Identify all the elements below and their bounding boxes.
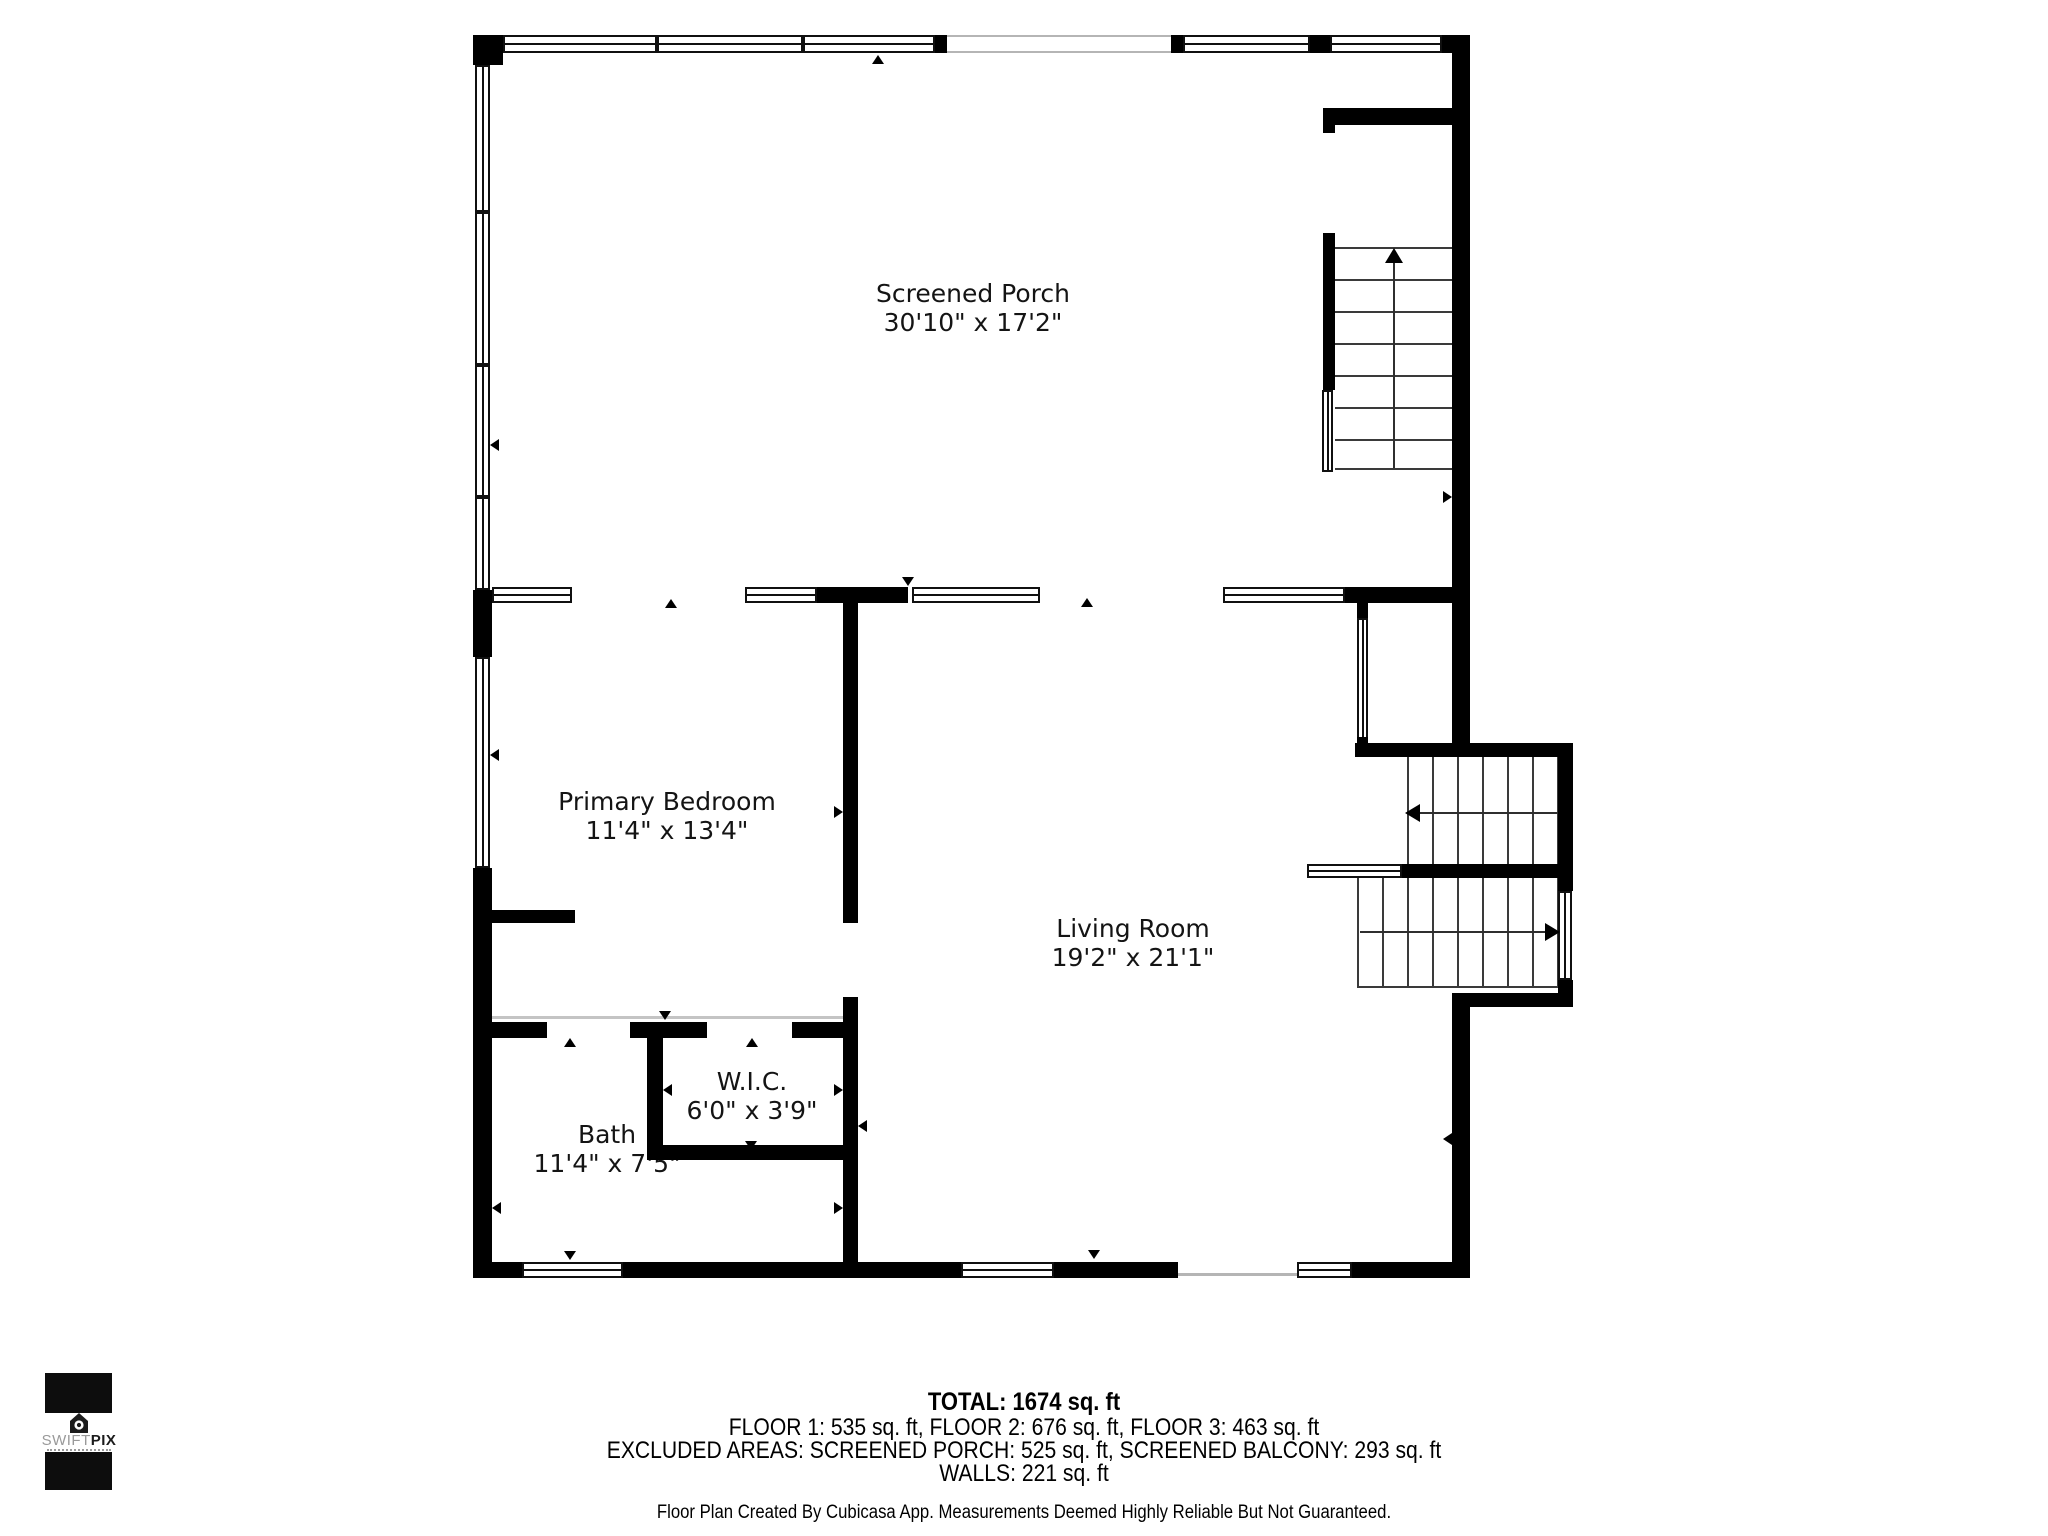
window: [1297, 1262, 1352, 1278]
door-marker-icon: [663, 1084, 672, 1096]
window: [492, 587, 572, 603]
wall-left: [473, 590, 492, 657]
door-marker-icon: [1443, 1133, 1452, 1145]
window: [1330, 35, 1442, 53]
door-marker-icon: [659, 1011, 671, 1020]
door-marker-icon: [834, 1084, 843, 1096]
wall-post: [935, 35, 947, 53]
window: [475, 212, 490, 365]
partition: [1357, 618, 1368, 739]
window: [657, 35, 803, 53]
wall-bumpout-top: [1355, 743, 1573, 757]
wall-bedroom-bottom: [492, 1022, 547, 1038]
plan-drawing: [0, 0, 2048, 1536]
window: [475, 657, 490, 868]
stair-direction-arrow-icon: [1405, 804, 1420, 822]
wall-alcove-right: [1455, 590, 1470, 757]
wall-stair-separator: [1400, 864, 1558, 878]
door-marker-icon: [665, 599, 677, 608]
window: [522, 1262, 623, 1278]
wall-right-lower: [1452, 993, 1470, 1278]
wall-stub: [1323, 108, 1335, 133]
door-marker-icon: [490, 749, 499, 761]
floor-plan-page: Screened Porch 30'10" x 17'2" Primary Be…: [0, 0, 2048, 1536]
stair-railing: [1307, 864, 1402, 878]
wall-bumpout-right: [1558, 743, 1573, 891]
open-boundary: [947, 35, 1171, 53]
wall-bedroom-bottom: [630, 1022, 707, 1038]
door-marker-icon: [1443, 491, 1452, 503]
door-marker-icon: [834, 806, 843, 818]
wall-post: [1171, 35, 1183, 53]
wall-divider-upper: [843, 603, 858, 923]
wall-bottom: [473, 1262, 522, 1278]
door-marker-icon: [872, 55, 884, 64]
stair-direction-line: [1412, 812, 1558, 814]
wall-porch-interior: [817, 587, 908, 603]
wall-corner-top-left: [473, 35, 503, 65]
wall-wic-left: [647, 1022, 663, 1160]
staircase-run-up: [1407, 757, 1558, 864]
door-marker-icon: [745, 1141, 757, 1150]
window: [1223, 587, 1345, 603]
window: [745, 587, 817, 603]
door-marker-icon: [746, 1038, 758, 1047]
window: [803, 35, 935, 53]
wall-bottom: [623, 1262, 961, 1278]
open-boundary: [1178, 1273, 1297, 1276]
door-marker-icon: [834, 1202, 843, 1214]
wall-bedroom-bottom: [792, 1022, 858, 1038]
window: [961, 1262, 1054, 1278]
door-marker-icon: [564, 1251, 576, 1260]
door-marker-icon: [1081, 598, 1093, 607]
wall-bottom: [1054, 1262, 1178, 1278]
wall-bumpout-bottom: [1453, 993, 1573, 1007]
door-marker-icon: [564, 1038, 576, 1047]
window: [475, 497, 490, 590]
door-marker-icon: [1088, 1250, 1100, 1259]
wall-post: [1310, 35, 1330, 53]
stair-direction-line: [1393, 252, 1395, 468]
wall-stair-left: [1323, 233, 1335, 390]
door-marker-icon: [902, 577, 914, 586]
window: [475, 365, 490, 497]
staircase-run-down: [1357, 878, 1558, 988]
wall-stair-enclosure: [1323, 108, 1468, 125]
window: [1558, 891, 1572, 980]
window: [1322, 390, 1333, 472]
stair-direction-arrow-icon: [1545, 923, 1560, 941]
door-marker-icon: [490, 439, 499, 451]
wall-bottom: [1352, 1262, 1470, 1278]
stair-direction-arrow-icon: [1385, 248, 1403, 263]
wall-left: [473, 868, 492, 1278]
window: [475, 65, 490, 212]
wall-porch-interior: [1345, 587, 1470, 603]
door-marker-icon: [858, 1120, 867, 1132]
stair-direction-line: [1360, 931, 1545, 933]
door-marker-icon: [492, 1202, 501, 1214]
window: [1183, 35, 1310, 53]
wall-stub: [492, 910, 575, 923]
window: [503, 35, 657, 53]
window: [912, 587, 1040, 603]
